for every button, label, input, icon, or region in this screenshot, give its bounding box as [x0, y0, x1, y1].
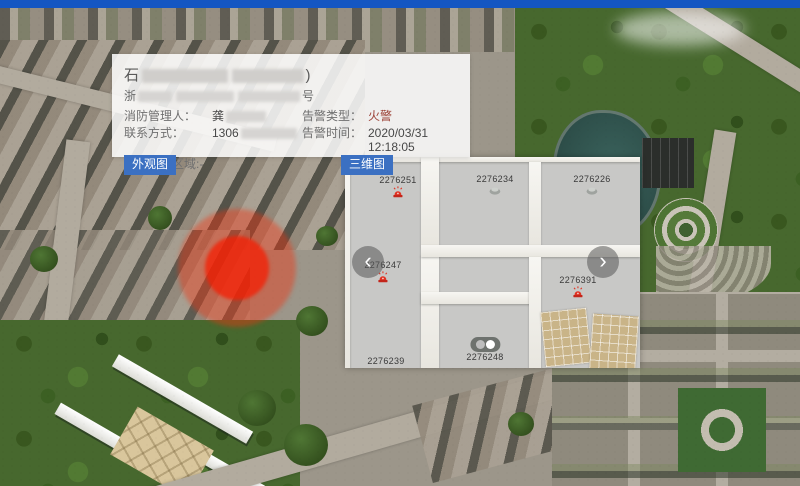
- site-address-prefix: 浙: [124, 89, 136, 103]
- contact-value: 1306: [212, 126, 302, 154]
- site-title-prefix: 石: [124, 67, 140, 84]
- manager-value: 龚: [212, 109, 302, 123]
- map-watermark-smudge: [615, 12, 745, 46]
- map-tree: [508, 412, 534, 436]
- site-address-suffix: 号: [302, 89, 314, 103]
- map-tree-circle-2: [284, 424, 328, 466]
- redacted-text: [241, 128, 297, 139]
- detector-icon: [585, 185, 598, 195]
- roof-tiles-2: [589, 313, 639, 368]
- map-tree-circle-1: [238, 390, 276, 426]
- site-title: 石): [124, 64, 311, 85]
- map-green-square: [678, 388, 766, 472]
- wall-vertical-c: [529, 257, 541, 368]
- redacted-text: [232, 69, 304, 83]
- map-dark-building: [642, 138, 694, 188]
- floorplan-3d-panel[interactable]: 2276251 2276234 2276226 2276247 2276391 …: [345, 157, 640, 368]
- detector-marker[interactable]: 2276226: [573, 174, 610, 195]
- wall-horizontal-b: [421, 292, 535, 304]
- detector-marker[interactable]: 2276239: [367, 356, 404, 366]
- alarm-time-value: 2020/03/31 12:18:05: [368, 126, 464, 154]
- floor-prev-button[interactable]: ‹: [352, 246, 384, 278]
- redacted-text: [142, 69, 228, 83]
- detector-marker[interactable]: 2276234: [476, 174, 513, 195]
- manager-label: 消防管理人：: [124, 109, 212, 123]
- contact-label: 联系方式：: [124, 126, 212, 154]
- wall-vertical-a-lower: [421, 255, 439, 368]
- detector-marker[interactable]: 2276248: [466, 336, 503, 362]
- detector-id: 2276251: [379, 175, 416, 185]
- alarm-time-label: 告警时间：: [302, 126, 368, 154]
- detector-id: 2276391: [559, 275, 596, 285]
- top-blue-bar: [0, 0, 800, 8]
- tab-3d-view[interactable]: 三维图: [341, 155, 393, 175]
- alarm-icon: [571, 286, 584, 299]
- map-tree: [30, 246, 58, 272]
- detector-marker[interactable]: 2276391: [559, 275, 596, 299]
- floor-next-button[interactable]: ›: [587, 246, 619, 278]
- redacted-text: [176, 91, 234, 102]
- detector-icon: [488, 185, 501, 195]
- redacted-text: [226, 111, 266, 122]
- roof-tiles-1: [540, 308, 591, 368]
- tab-exterior-view[interactable]: 外观图: [124, 155, 176, 175]
- detector-id: 2276248: [466, 352, 503, 362]
- site-title-suffix: ): [306, 67, 312, 84]
- wall-left: [345, 157, 350, 368]
- map-tree: [296, 306, 328, 336]
- map-tree: [316, 226, 338, 246]
- detector-id: 2276226: [573, 174, 610, 184]
- fire-monitoring-screen: 石) 浙号 消防管理人： 龚 告警类型： 火警 联系方式： 1306 告警时间：…: [0, 0, 800, 486]
- alarm-icon: [391, 186, 404, 199]
- site-address: 浙号: [124, 87, 314, 104]
- alarm-info-panel: 石) 浙号 消防管理人： 龚 告警类型： 火警 联系方式： 1306 告警时间：…: [112, 54, 470, 157]
- map-tree: [148, 206, 172, 230]
- redacted-text: [138, 91, 172, 102]
- device-toggle-icon: [470, 337, 500, 352]
- alarm-radius-inner: [205, 236, 269, 300]
- alarm-type-label: 告警类型：: [302, 109, 368, 123]
- detector-id: 2276239: [367, 356, 404, 366]
- detector-marker[interactable]: 2276251: [379, 175, 416, 199]
- alarm-type-value: 火警: [368, 109, 464, 123]
- redacted-text: [238, 91, 300, 102]
- detector-id: 2276234: [476, 174, 513, 184]
- wall-vertical-b: [529, 162, 541, 245]
